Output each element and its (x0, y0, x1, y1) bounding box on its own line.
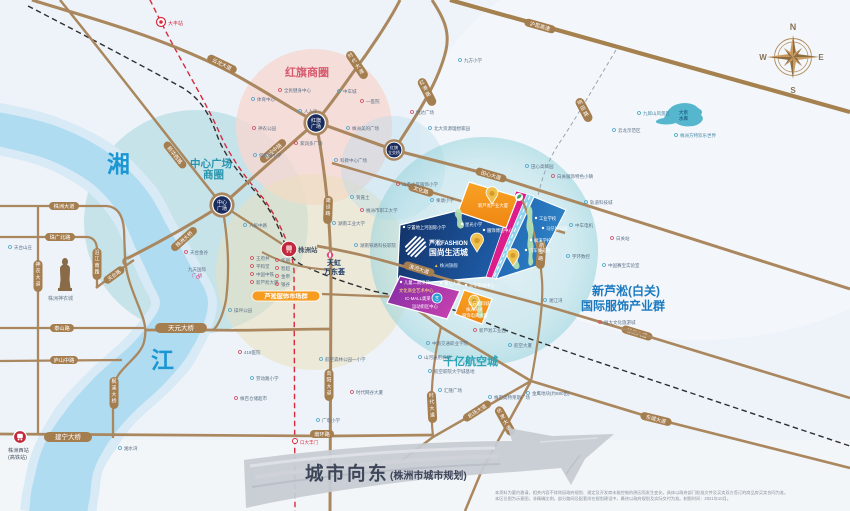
svg-text:株洲美的广场: 株洲美的广场 (352, 125, 379, 132)
svg-text:株百奥特莱斯广场: 株百奥特莱斯广场 (494, 394, 530, 401)
svg-text:珠广北路: 珠广北路 (50, 233, 72, 241)
svg-text:城市向东: 城市向东 (305, 463, 389, 484)
svg-text:何家坳小学: 何家坳小学 (259, 152, 282, 159)
svg-text:服饰电商大厦: 服饰电商大厦 (462, 312, 488, 319)
svg-text:沿: 沿 (94, 249, 99, 256)
svg-text:操坪公园: 操坪公园 (234, 307, 252, 314)
svg-text:株洲西站: 株洲西站 (8, 446, 29, 454)
svg-text:道: 道 (326, 390, 331, 397)
svg-text:九郎山风景区: 九郎山风景区 (643, 110, 670, 117)
svg-text:时: 时 (429, 392, 434, 399)
svg-text:万东荟: 万东荟 (323, 267, 346, 276)
svg-text:中国赛宝实验室: 中国赛宝实验室 (608, 262, 640, 269)
svg-text:阳: 阳 (326, 377, 331, 384)
svg-text:▲ 株洲旗舰: ▲ 株洲旗舰 (434, 262, 458, 269)
svg-text:星光小学: 星光小学 (465, 221, 483, 228)
svg-text:国际服饰产业群: 国际服饰产业群 (581, 298, 665, 313)
svg-text:路: 路 (538, 255, 543, 262)
svg-text:时代网谷大厦: 时代网谷大厦 (356, 389, 383, 396)
svg-text:神农公园: 神农公园 (258, 125, 276, 132)
svg-text:山香小区服饰小学: 山香小区服饰小学 (402, 181, 438, 188)
svg-text:湘江湾: 湘江湾 (549, 297, 563, 304)
svg-text:广场: 广场 (311, 123, 321, 130)
svg-text:大丰站: 大丰站 (168, 20, 183, 27)
svg-text:建宁大桥: 建宁大桥 (55, 432, 82, 441)
svg-text:农: 农 (35, 268, 40, 275)
svg-text:中心: 中心 (217, 199, 227, 206)
svg-text:株洲方特欢乐世界: 株洲方特欢乐世界 (680, 132, 716, 139)
svg-text:运动街区中心: 运动街区中心 (412, 303, 438, 310)
svg-text:湘江人家: 湘江人家 (444, 280, 462, 287)
svg-text:广电小学: 广电小学 (322, 417, 340, 424)
svg-text:国尚生活城: 国尚生活城 (429, 247, 468, 257)
svg-text:天台金谷: 天台金谷 (190, 249, 208, 256)
svg-text:悦达广场: 悦达广场 (416, 109, 434, 116)
svg-text:九方面料城: 九方面料城 (468, 300, 490, 307)
svg-text:大: 大 (429, 405, 434, 412)
svg-text:枫溪学校: 枫溪学校 (534, 237, 552, 244)
svg-text:广 场: 广 场 (192, 272, 203, 279)
svg-text:宁置地上河国际小学: 宁置地上河国际小学 (407, 224, 446, 231)
svg-text:航空职院大学城基地: 航空职院大学城基地 (434, 368, 475, 375)
svg-text:天台山庄: 天台山庄 (14, 244, 32, 251)
svg-text:田心高科园: 田心高科园 (531, 163, 554, 170)
svg-text:艺: 艺 (435, 296, 440, 301)
svg-text:千亿航空城: 千亿航空城 (443, 354, 498, 368)
svg-text:(株洲市城市规划): (株洲市城市规划) (390, 469, 467, 482)
svg-text:汇隆广场: 汇隆广场 (444, 387, 462, 394)
svg-text:新芦淞产业大厦: 新芦淞产业大厦 (478, 202, 509, 209)
svg-text:溪: 溪 (111, 385, 116, 392)
svg-text:天虹: 天虹 (327, 258, 341, 267)
svg-text:芦淞FASHION: 芦淞FASHION (429, 239, 468, 247)
svg-text:湘: 湘 (107, 151, 130, 177)
svg-text:道: 道 (430, 411, 435, 418)
svg-text:马仔坡公园: 马仔坡公园 (546, 225, 567, 232)
svg-text:工业学校: 工业学校 (539, 215, 557, 222)
svg-text:E: E (818, 53, 824, 62)
svg-text:418医院: 418医院 (244, 349, 261, 356)
svg-text:九天国际: 九天国际 (188, 266, 206, 273)
svg-text:大: 大 (111, 391, 116, 398)
svg-text:新芦淞(白关): 新芦淞(白关) (592, 283, 660, 298)
svg-text:火车南站中心: 火车南站中心 (469, 282, 495, 289)
svg-text:平和堂: 平和堂 (256, 263, 270, 270)
svg-text:恒大文化旅游城: 恒大文化旅游城 (604, 319, 636, 326)
svg-text:金鹰地块(约680亩): 金鹰地块(约680亩) (532, 390, 570, 397)
svg-text:路: 路 (325, 210, 330, 217)
svg-text:株洲站: 株洲站 (298, 245, 318, 254)
svg-text:商圈: 商圈 (203, 168, 224, 181)
svg-text:轨道科技城: 轨道科技城 (590, 199, 613, 206)
svg-text:水库: 水库 (679, 115, 688, 122)
svg-text:一医院: 一医院 (366, 98, 380, 105)
svg-text:家润多广场: 家润多广场 (300, 140, 323, 147)
svg-text:白关服饰特色小镇: 白关服饰特色小镇 (557, 173, 593, 180)
svg-text:湖南铁路科技职院: 湖南铁路科技职院 (360, 242, 396, 249)
svg-text:中国中铁: 中国中铁 (256, 271, 274, 278)
svg-text:W: W (759, 53, 767, 62)
svg-text:九方小学: 九方小学 (464, 57, 482, 64)
svg-text:江: 江 (151, 347, 174, 373)
svg-text:大: 大 (326, 383, 331, 390)
svg-text:人民中路: 人民中路 (249, 222, 267, 229)
svg-text:栗塘小学: 栗塘小学 (436, 197, 454, 204)
svg-text:(高铁站): (高铁站) (8, 453, 27, 461)
svg-text:本区位图为示意图，非精确比例，部分路网及配套尚在规划建设中，: 本区位图为示意图，非精确比例，部分路网及配套尚在规划建设中，最终以政府规划及实际… (495, 495, 731, 502)
svg-text:红旗商圈: 红旗商圈 (285, 65, 329, 79)
svg-text:宇环数控: 宇环数控 (572, 253, 590, 260)
svg-text:贺嘉土: 贺嘉土 (356, 194, 370, 201)
svg-text:服饰博览中心: 服饰博览中心 (487, 227, 513, 234)
svg-text:本资料为要约邀请，相关内容不排除因政府规划、规定及开发商未能: 本资料为要约邀请，相关内容不排除因政府规划、规定及开发商未能控制的原因而发生变化… (495, 489, 788, 496)
svg-text:劳动路小学: 劳动路小学 (256, 375, 279, 382)
svg-text:南环路: 南环路 (314, 430, 330, 438)
svg-text:航空森林公园一小学: 航空森林公园一小学 (325, 356, 366, 363)
svg-text:红旗: 红旗 (311, 117, 321, 124)
svg-text:口大丰门: 口大丰门 (300, 439, 318, 446)
svg-text:立交桥: 立交桥 (388, 149, 400, 155)
svg-text:代: 代 (429, 398, 434, 405)
svg-text:S: S (790, 86, 796, 95)
svg-text:泰山路: 泰山路 (54, 324, 70, 332)
svg-text:江: 江 (94, 256, 99, 263)
svg-text:庐山中路: 庐山中路 (54, 356, 76, 364)
svg-text:株洲海关: 株洲海关 (466, 306, 484, 313)
svg-text:株百仓储超市: 株百仓储超市 (240, 395, 267, 402)
svg-text:智超: 智超 (281, 265, 290, 272)
svg-text:云龙示范区: 云龙示范区 (618, 127, 641, 134)
svg-text:航空大厦: 航空大厦 (514, 342, 532, 349)
svg-text:人人乐: 人人乐 (304, 108, 318, 114)
svg-text:大京: 大京 (679, 109, 688, 116)
svg-text:中南交通职业学院: 中南交通职业学院 (432, 340, 468, 347)
svg-text:株洲市职工大学: 株洲市职工大学 (366, 207, 398, 214)
svg-text:N: N (790, 22, 797, 32)
svg-text:汽车博览园: 汽车博览园 (529, 247, 550, 254)
svg-text:天元大桥: 天元大桥 (168, 323, 195, 332)
svg-text:山河通用机场: 山河通用机场 (424, 354, 451, 361)
svg-text:体育中心: 体育中心 (257, 96, 275, 103)
svg-text:株洲神农城: 株洲神农城 (48, 295, 73, 302)
svg-text:文化商业艺术中心: 文化商业艺术中心 (399, 287, 434, 294)
svg-text:中车电机: 中车电机 (575, 222, 593, 229)
svg-text:白关站: 白关站 (616, 235, 630, 242)
svg-text:科教中心广场: 科教中心广场 (340, 157, 367, 164)
svg-text:建: 建 (326, 197, 331, 204)
svg-text:枫: 枫 (111, 378, 116, 385)
svg-text:芦淞服饰市场群: 芦淞服饰市场群 (264, 293, 308, 301)
svg-text:神: 神 (35, 261, 40, 268)
svg-text:IC-MALL奥莱: IC-MALL奥莱 (405, 295, 431, 302)
svg-text:道: 道 (35, 281, 40, 288)
svg-text:金帝: 金帝 (281, 273, 290, 280)
svg-text:设: 设 (325, 203, 330, 210)
svg-text:广场: 广场 (217, 205, 227, 212)
svg-text:王府井: 王府井 (256, 255, 270, 262)
svg-text:中车城: 中车城 (343, 88, 357, 95)
svg-text:桥: 桥 (111, 398, 116, 405)
svg-text:大: 大 (35, 274, 40, 281)
svg-text:路: 路 (94, 269, 99, 276)
svg-text:湖南工业大学: 湖南工业大学 (338, 220, 365, 227)
svg-text:向: 向 (326, 370, 331, 377)
svg-text:北大资源理想家园: 北大资源理想家园 (434, 125, 470, 132)
svg-text:华丽: 华丽 (281, 257, 290, 264)
svg-text:湘水湾: 湘水湾 (124, 445, 138, 452)
svg-text:新芦淞工业园: 新芦淞工业园 (479, 327, 506, 334)
svg-text:南: 南 (94, 262, 99, 269)
svg-text:儿童二期项目: 儿童二期项目 (404, 279, 430, 286)
svg-text:银谷: 银谷 (281, 281, 290, 288)
svg-text:全民健身中心: 全民健身中心 (284, 87, 311, 94)
svg-text:株洲大道: 株洲大道 (54, 202, 75, 210)
